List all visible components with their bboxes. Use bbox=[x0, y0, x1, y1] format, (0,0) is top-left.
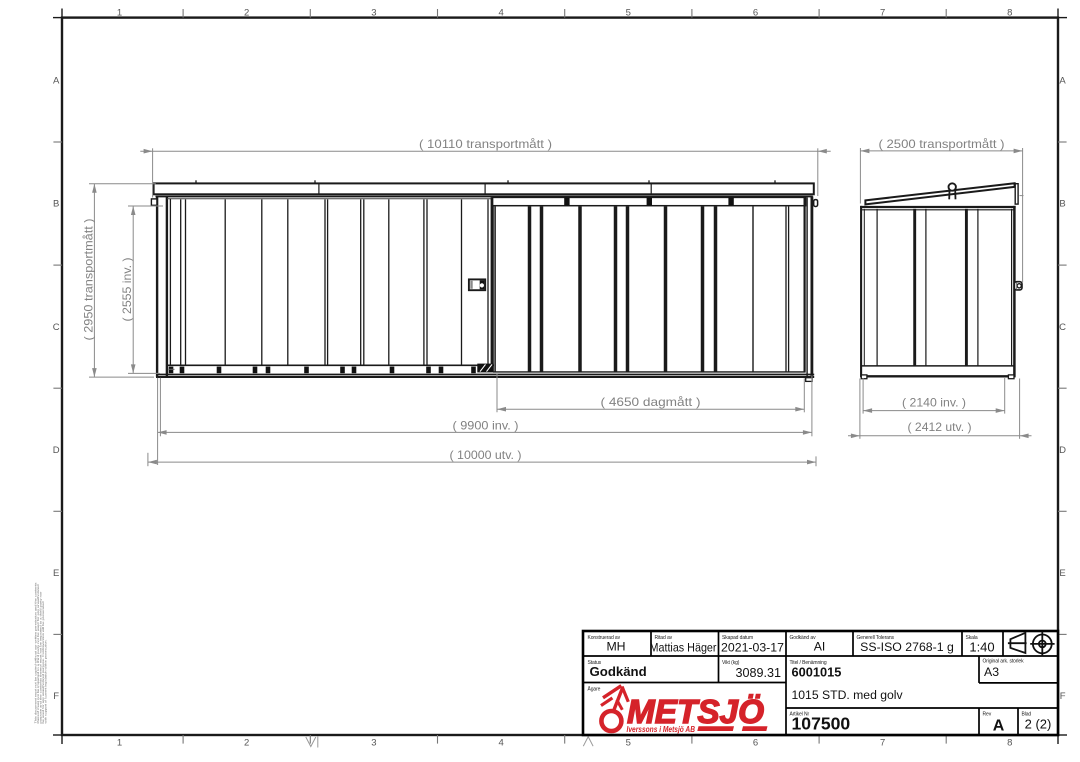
svg-text:E: E bbox=[53, 568, 59, 579]
svg-text:5: 5 bbox=[626, 8, 631, 19]
svg-text:Rev: Rev bbox=[983, 712, 992, 718]
svg-text:5: 5 bbox=[626, 738, 631, 749]
svg-text:A: A bbox=[1059, 76, 1066, 87]
svg-text:Mattias Häger: Mattias Häger bbox=[650, 641, 717, 655]
svg-text:8: 8 bbox=[1007, 8, 1012, 19]
svg-text:2: 2 bbox=[244, 8, 249, 19]
svg-text:MH: MH bbox=[606, 640, 625, 654]
svg-text:1: 1 bbox=[117, 738, 122, 749]
svg-text:AI: AI bbox=[814, 640, 826, 654]
svg-text:6001015: 6001015 bbox=[792, 665, 842, 680]
svg-text:( 2140 inv. ): ( 2140 inv. ) bbox=[902, 395, 966, 409]
svg-text:F: F bbox=[1060, 691, 1066, 702]
svg-text:D: D bbox=[1059, 445, 1066, 456]
svg-text:3: 3 bbox=[371, 8, 376, 19]
svg-text:( 10110 transportmått ): ( 10110 transportmått ) bbox=[419, 137, 552, 151]
svg-text:1:40: 1:40 bbox=[969, 640, 994, 655]
svg-text:3089.31: 3089.31 bbox=[735, 666, 781, 680]
svg-text:7: 7 bbox=[880, 8, 885, 19]
svg-text:A: A bbox=[53, 76, 60, 87]
svg-text:B: B bbox=[1059, 199, 1065, 210]
svg-text:1015 STD. med golv: 1015 STD. med golv bbox=[792, 688, 904, 702]
svg-text:with support of current legisl: with support of current legislation with… bbox=[43, 639, 47, 723]
svg-text:SS-ISO 2768-1 g: SS-ISO 2768-1 g bbox=[860, 640, 954, 654]
svg-text:2: 2 bbox=[244, 738, 249, 749]
svg-text:C: C bbox=[1059, 322, 1066, 333]
svg-text:( 2412 utv. ): ( 2412 utv. ) bbox=[908, 420, 972, 434]
svg-text:F: F bbox=[53, 691, 59, 702]
svg-text:( 10000 utv. ): ( 10000 utv. ) bbox=[450, 448, 522, 462]
svg-text:4: 4 bbox=[498, 738, 503, 749]
svg-text:1: 1 bbox=[117, 8, 122, 19]
svg-text:7: 7 bbox=[880, 738, 885, 749]
svg-text:107500: 107500 bbox=[792, 714, 851, 734]
svg-text:E: E bbox=[1059, 568, 1065, 579]
svg-text:C: C bbox=[53, 322, 60, 333]
svg-text:B: B bbox=[53, 199, 59, 210]
svg-text:( 2950 transportmått ): ( 2950 transportmått ) bbox=[81, 219, 95, 341]
svg-text:( 2500 transportmått ): ( 2500 transportmått ) bbox=[879, 137, 1005, 151]
svg-text:Original ark. storlek: Original ark. storlek bbox=[983, 659, 1025, 665]
svg-text:( 2555 inv. ): ( 2555 inv. ) bbox=[120, 258, 134, 322]
svg-text:6: 6 bbox=[753, 8, 758, 19]
svg-text:A3: A3 bbox=[984, 665, 999, 679]
svg-text:( 4650 dagmått ): ( 4650 dagmått ) bbox=[601, 395, 701, 409]
svg-text:( 9900 inv. ): ( 9900 inv. ) bbox=[453, 418, 519, 432]
svg-text:2 (2): 2 (2) bbox=[1025, 717, 1052, 732]
svg-text:A: A bbox=[993, 718, 1005, 735]
svg-text:D: D bbox=[53, 445, 60, 456]
svg-text:4: 4 bbox=[498, 8, 503, 19]
svg-text:3: 3 bbox=[371, 738, 376, 749]
svg-text:8: 8 bbox=[1007, 738, 1012, 749]
svg-text:Godkänd: Godkänd bbox=[590, 664, 647, 679]
svg-text:Ägare: Ägare bbox=[588, 686, 601, 693]
svg-text:Iverssons i Metsjö AB: Iverssons i Metsjö AB bbox=[627, 725, 696, 734]
svg-text:Godkänd av: Godkänd av bbox=[790, 635, 817, 641]
svg-text:2021-03-17: 2021-03-17 bbox=[721, 641, 784, 655]
svg-text:6: 6 bbox=[753, 738, 758, 749]
